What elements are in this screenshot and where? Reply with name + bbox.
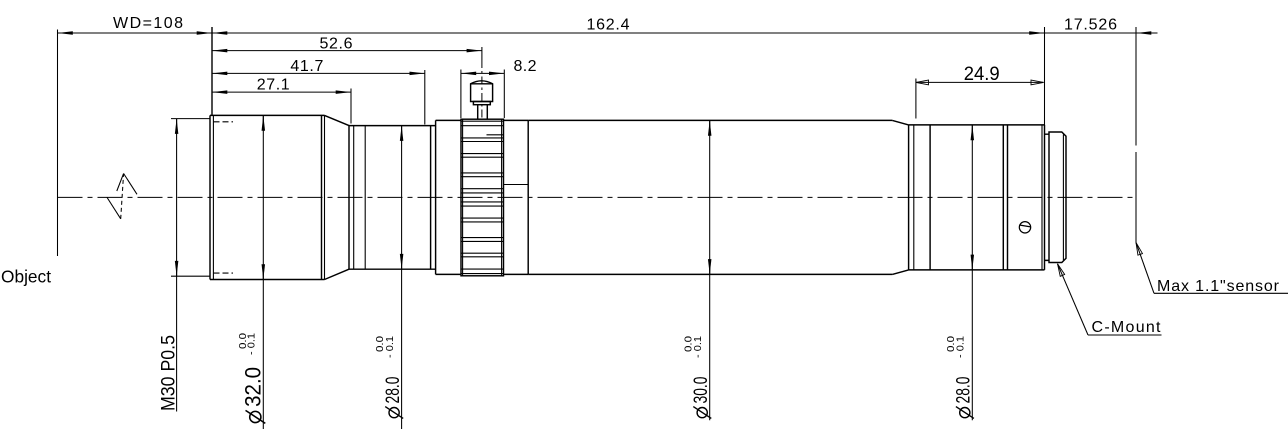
svg-text:8.2: 8.2 [514,58,537,75]
svg-text:28.0: 28.0 [382,376,404,403]
svg-text:Object: Object [1,267,51,287]
svg-text:30.0: 30.0 [690,376,712,403]
svg-text:162.4: 162.4 [587,17,630,34]
svg-text:M30 P0.5: M30 P0.5 [158,335,179,411]
svg-text:17.526: 17.526 [1064,17,1117,34]
svg-text:27.1: 27.1 [257,77,290,94]
svg-text:32.0: 32.0 [241,367,266,407]
svg-text:- 0.1: - 0.1 [385,336,396,358]
svg-text:- 0.1: - 0.1 [693,336,704,358]
svg-text:Max 1.1"sensor: Max 1.1"sensor [1157,278,1280,295]
svg-text:WD=108: WD=108 [113,15,183,32]
svg-text:41.7: 41.7 [290,58,323,75]
svg-text:28.0: 28.0 [953,376,975,403]
svg-text:24.9: 24.9 [964,64,1000,85]
svg-text:- 0.1: - 0.1 [247,333,258,355]
svg-text:C-Mount: C-Mount [1092,319,1162,336]
svg-text:- 0.1: - 0.1 [956,336,967,358]
svg-text:52.6: 52.6 [320,36,353,53]
